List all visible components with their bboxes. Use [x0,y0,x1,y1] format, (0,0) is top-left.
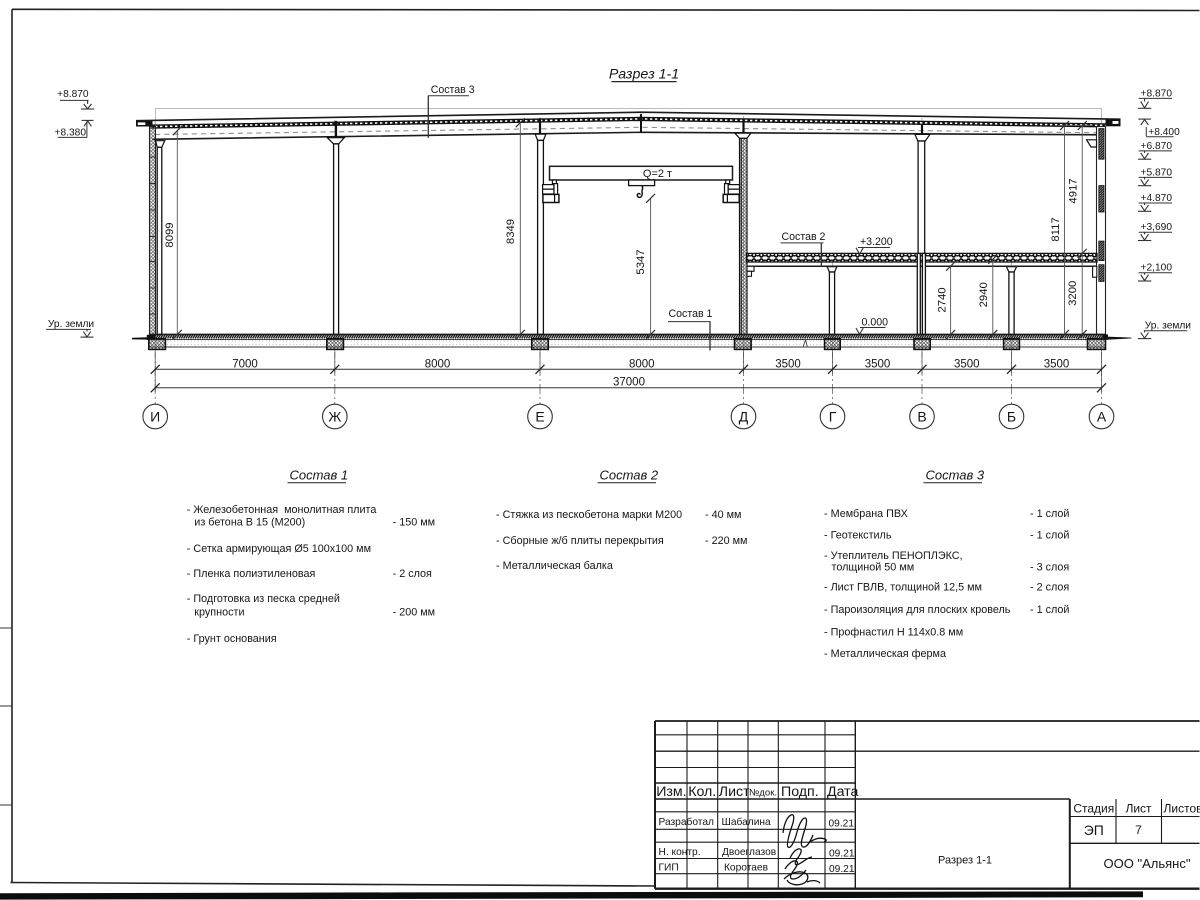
svg-text:- Стяжка из пескобетона марки: - Стяжка из пескобетона марки М200 [496,509,682,521]
svg-text:Ж: Ж [328,409,341,425]
svg-text:Состав 1: Состав 1 [290,467,349,482]
svg-text:- Сетка армирующая Ø5 100х100: - Сетка армирующая Ø5 100х100 мм [187,543,371,555]
svg-text:+8.870: +8.870 [1141,88,1173,99]
svg-text:- 3 слоя: - 3 слоя [1030,562,1069,574]
svg-text:3500: 3500 [1044,358,1070,370]
svg-text:09.21: 09.21 [829,849,855,860]
svg-text:7: 7 [1135,823,1142,837]
svg-text:0.000: 0.000 [862,316,889,328]
svg-text:Разрез 1-1: Разрез 1-1 [609,67,679,83]
svg-text:Q=2 т: Q=2 т [643,168,672,180]
svg-text:Лист: Лист [719,784,750,800]
svg-text:8000: 8000 [425,358,451,370]
svg-text:8349: 8349 [505,219,517,244]
svg-text:толщиной 50 мм: толщиной 50 мм [832,562,915,574]
svg-text:Состав 2: Состав 2 [782,231,826,243]
svg-text:+5.870: +5.870 [1141,167,1173,178]
svg-text:Лист: Лист [1125,801,1152,815]
svg-text:Состав 3: Состав 3 [926,467,985,482]
svg-text:Разрез 1-1: Разрез 1-1 [938,854,992,866]
svg-text:4917: 4917 [1068,178,1080,203]
svg-text:- 40 мм: - 40 мм [705,509,741,521]
svg-text:Коротаев: Коротаев [724,863,768,874]
svg-text:- Пароизоляция для плоских кро: - Пароизоляция для плоских кровель [824,604,1011,616]
svg-text:+2,100: +2,100 [1141,263,1173,274]
svg-text:- Сборные ж/б плиты перекрытия: - Сборные ж/б плиты перекрытия [496,535,664,547]
svg-text:Г: Г [829,409,837,425]
svg-text:09.21: 09.21 [829,819,855,830]
svg-text:- Грунт основания: - Грунт основания [187,633,277,645]
svg-text:А: А [1097,409,1107,425]
svg-text:Д: Д [739,409,749,425]
svg-text:Состав 1: Состав 1 [669,308,713,320]
svg-text:2940: 2940 [978,282,990,307]
svg-text:ООО "Альянс": ООО "Альянс" [1104,856,1191,871]
svg-text:- Железобетонная монолитная п: - Железобетонная монолитная плита [187,504,377,516]
svg-text:Состав 2: Состав 2 [600,467,659,482]
svg-text:Подп.: Подп. [781,784,819,800]
svg-text:Ур. земли: Ур. земли [1145,321,1191,332]
svg-text:Е: Е [535,409,544,425]
svg-text:8099: 8099 [164,222,176,247]
svg-text:Дата: Дата [827,784,859,800]
svg-text:Ур. земли: Ур. земли [48,319,94,330]
svg-text:ЭП: ЭП [1084,822,1104,838]
svg-text:- Пленка полиэтиленовая: - Пленка полиэтиленовая [187,568,316,580]
svg-text:- Металлическая ферма: - Металлическая ферма [824,648,946,660]
svg-text:Стадия: Стадия [1073,801,1114,815]
svg-text:8117: 8117 [1050,217,1062,241]
svg-text:- 1 слой: - 1 слой [1030,530,1069,542]
svg-text:+8.380: +8.380 [55,127,87,138]
svg-text:+3,690: +3,690 [1141,222,1173,233]
svg-text:- Лист ГВЛВ, толщиной 12,5 мм: - Лист ГВЛВ, толщиной 12,5 мм [824,582,982,594]
svg-text:- 2 слоя: - 2 слоя [393,568,432,580]
svg-text:7000: 7000 [232,358,258,370]
svg-text:Разработал: Разработал [659,816,715,828]
svg-text:09.21: 09.21 [829,864,855,875]
svg-text:+6.870: +6.870 [1141,141,1173,152]
svg-text:- 150 мм: - 150 мм [393,517,435,529]
svg-text:- Мембрана ПВХ: - Мембрана ПВХ [824,508,908,520]
svg-text:- Подготовка из песка средней: - Подготовка из песка средней [187,593,340,605]
svg-text:- Профнастил Н 114х0.8 мм: - Профнастил Н 114х0.8 мм [824,627,963,639]
svg-text:- 220 мм: - 220 мм [705,535,747,547]
svg-text:2740: 2740 [937,287,949,312]
svg-text:37000: 37000 [613,376,645,388]
svg-text:В: В [917,409,926,425]
svg-text:+3.200: +3.200 [860,236,893,248]
svg-text:№док.: №док. [749,787,777,798]
svg-text:Кол.: Кол. [688,784,716,800]
svg-text:Б: Б [1007,409,1016,425]
svg-text:Листов: Листов [1164,801,1200,815]
svg-text:- 200 мм: - 200 мм [393,607,435,619]
svg-text:3500: 3500 [954,358,980,370]
svg-text:3500: 3500 [775,358,801,370]
svg-text:- 1 слой: - 1 слой [1030,604,1069,616]
svg-text:ГИП: ГИП [659,863,679,874]
svg-text:8000: 8000 [629,358,655,370]
svg-text:И: И [150,409,160,425]
svg-text:из бетона В 15 (М200): из бетона В 15 (М200) [194,517,305,529]
svg-text:Н. контр.: Н. контр. [659,847,701,858]
svg-text:- Геотекстиль: - Геотекстиль [824,530,892,542]
svg-text:Двоеглазов: Двоеглазов [722,847,776,858]
svg-text:+4.870: +4.870 [1141,193,1173,204]
svg-text:Шабалина: Шабалина [722,816,772,828]
svg-text:- Металлическая балка: - Металлическая балка [496,560,613,572]
svg-text:- 1 слой: - 1 слой [1030,508,1069,520]
svg-text:- 2 слоя: - 2 слоя [1030,582,1069,594]
svg-text:Состав 3: Состав 3 [431,84,475,96]
svg-text:Изм.: Изм. [656,784,686,800]
svg-text:3500: 3500 [865,358,891,370]
svg-text:- Утеплитель ПЕНОПЛЭКС,: - Утеплитель ПЕНОПЛЭКС, [824,550,963,562]
svg-text:3200: 3200 [1067,281,1079,306]
svg-text:крупности: крупности [194,607,244,619]
svg-text:5347: 5347 [635,249,647,274]
svg-text:+8.870: +8.870 [57,89,89,100]
